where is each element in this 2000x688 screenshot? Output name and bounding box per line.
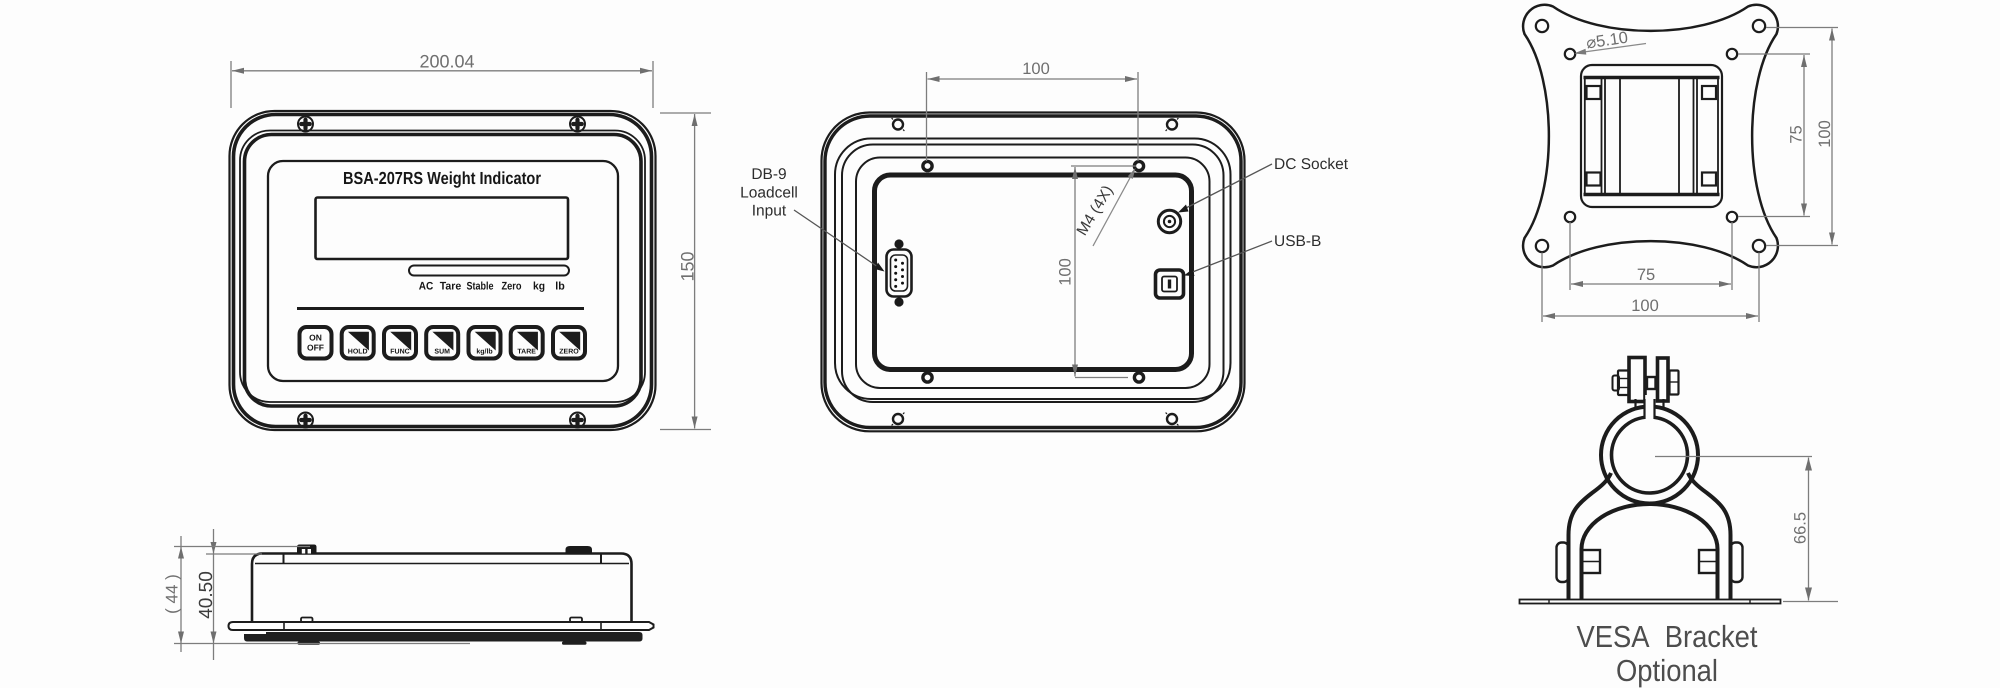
svg-text:40.50: 40.50 [196, 571, 217, 619]
svg-text:USB-B: USB-B [1274, 233, 1321, 250]
svg-text:200.04: 200.04 [419, 52, 474, 72]
svg-text:ON: ON [309, 333, 322, 343]
svg-text:Loadcell: Loadcell [740, 185, 798, 202]
svg-text:lb: lb [555, 281, 565, 293]
svg-text:66.5: 66.5 [1791, 512, 1809, 544]
svg-text:Input: Input [752, 203, 787, 220]
svg-text:100: 100 [1816, 120, 1834, 148]
svg-text:FUNC: FUNC [390, 349, 409, 356]
svg-text:Optional: Optional [1616, 654, 1718, 688]
svg-text:kg/lb: kg/lb [476, 348, 492, 356]
svg-text:VESA Bracket: VESA Bracket [1577, 620, 1758, 654]
svg-text:DC Socket: DC Socket [1274, 156, 1349, 173]
svg-text:Zero: Zero [502, 281, 522, 293]
svg-text:100: 100 [1022, 60, 1050, 78]
svg-text:Tare: Tare [440, 281, 462, 293]
svg-text:ZERO: ZERO [559, 349, 579, 356]
svg-text:DB-9: DB-9 [751, 166, 786, 183]
svg-text:HOLD: HOLD [348, 349, 368, 356]
svg-text:75: 75 [1637, 266, 1655, 284]
svg-text:SUM: SUM [434, 349, 450, 356]
svg-text:AC: AC [419, 281, 434, 293]
svg-text:OFF: OFF [307, 343, 324, 353]
svg-text:( 44 ): ( 44 ) [162, 574, 181, 614]
svg-text:BSA-207RS Weight Indicator: BSA-207RS Weight Indicator [343, 168, 541, 188]
svg-text:Stable: Stable [467, 281, 494, 293]
svg-text:150: 150 [677, 251, 697, 281]
svg-text:100: 100 [1631, 297, 1659, 315]
svg-text:100: 100 [1056, 258, 1074, 286]
svg-text:75: 75 [1787, 125, 1805, 143]
svg-text:kg: kg [533, 281, 545, 293]
svg-text:TARE: TARE [517, 349, 536, 356]
